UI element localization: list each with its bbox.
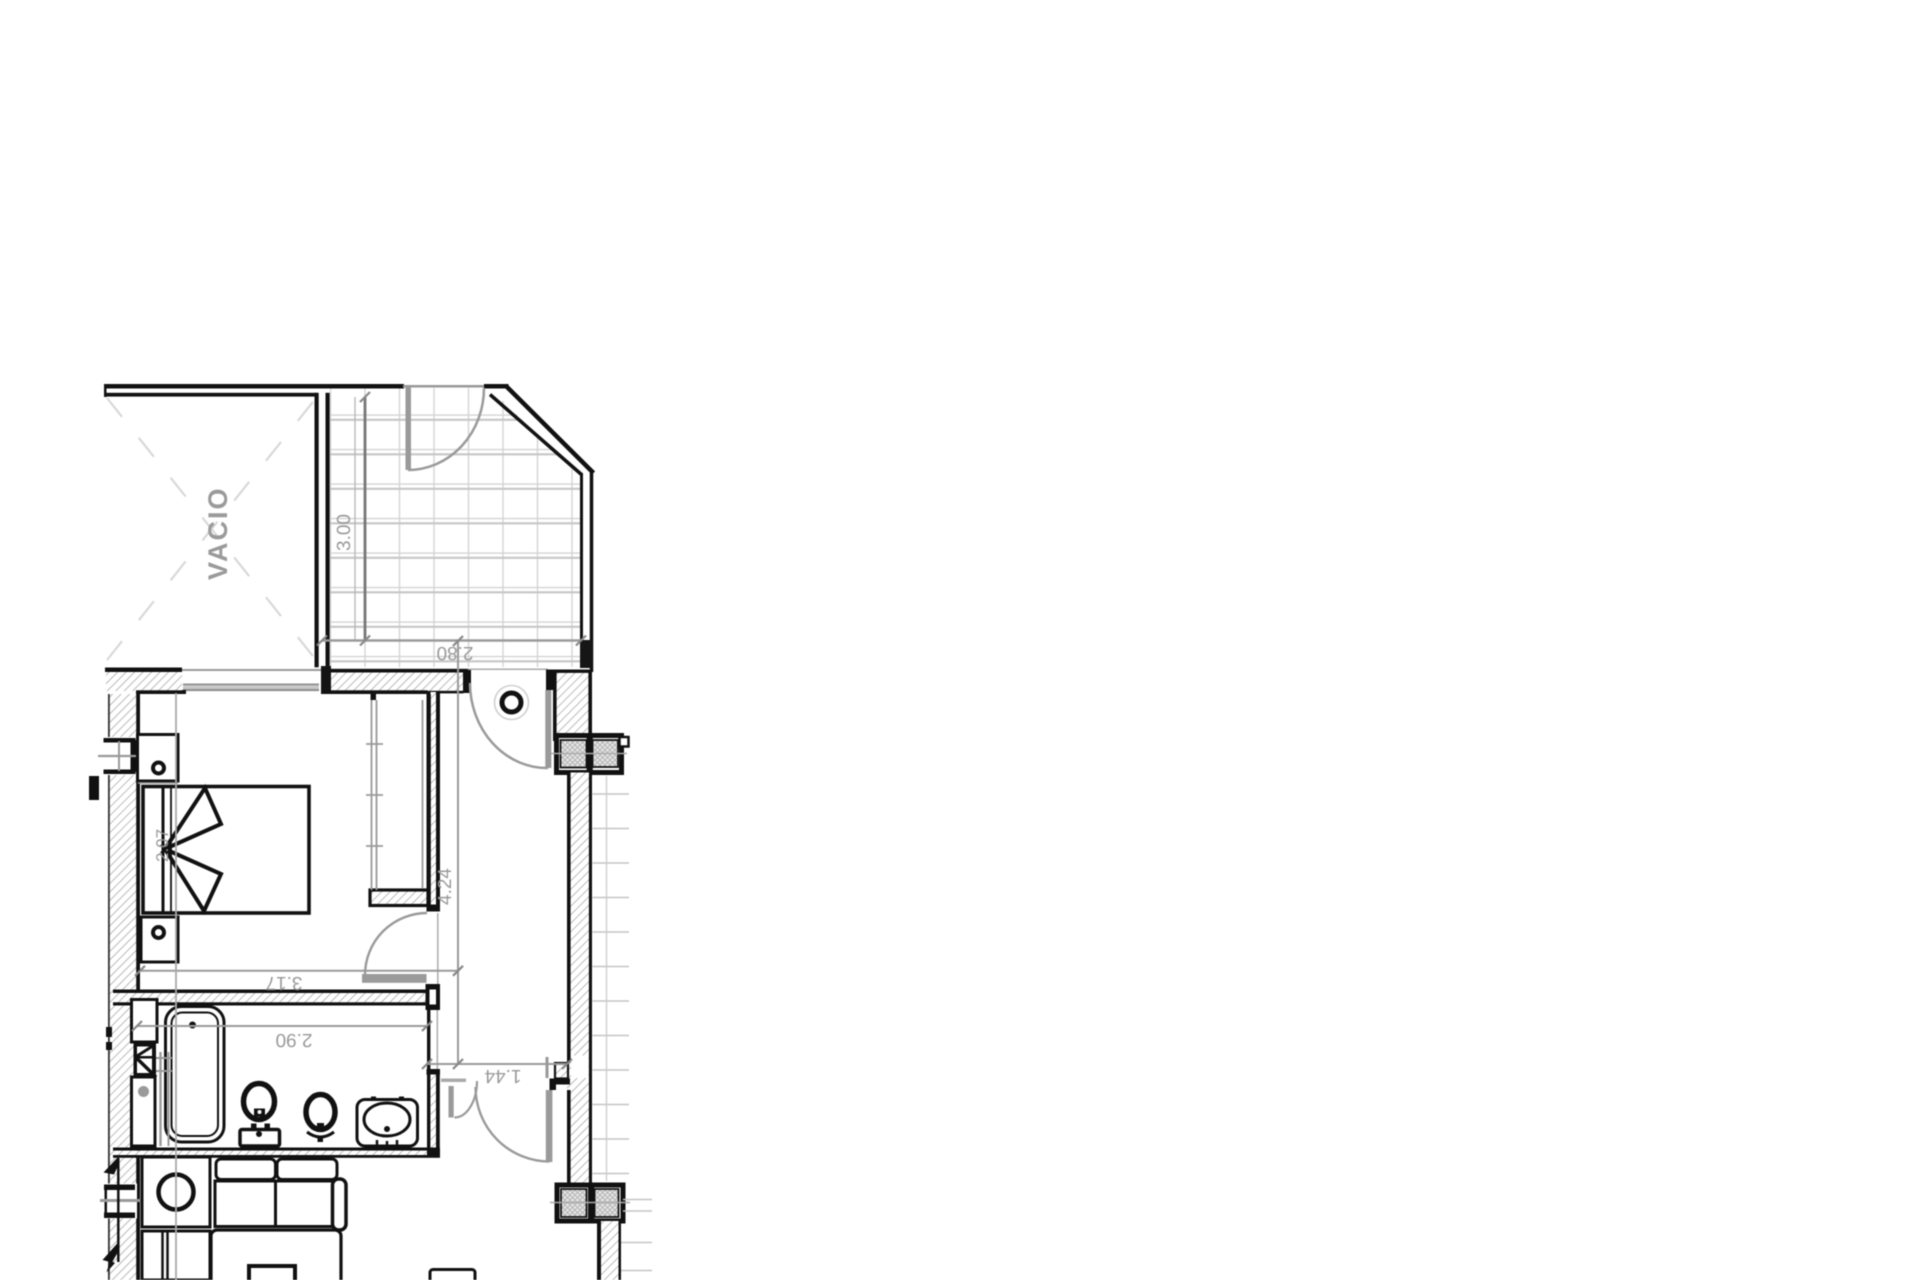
svg-text:2.07: 2.07 <box>153 829 172 862</box>
svg-text:4.24: 4.24 <box>435 868 456 905</box>
svg-text:3.17: 3.17 <box>266 972 303 993</box>
svg-text:2.80: 2.80 <box>437 642 474 663</box>
svg-text:2.90: 2.90 <box>276 1029 313 1050</box>
svg-text:3.00: 3.00 <box>334 514 355 551</box>
svg-text:1.44: 1.44 <box>484 1065 521 1086</box>
svg-text:VACIO: VACIO <box>203 486 233 580</box>
